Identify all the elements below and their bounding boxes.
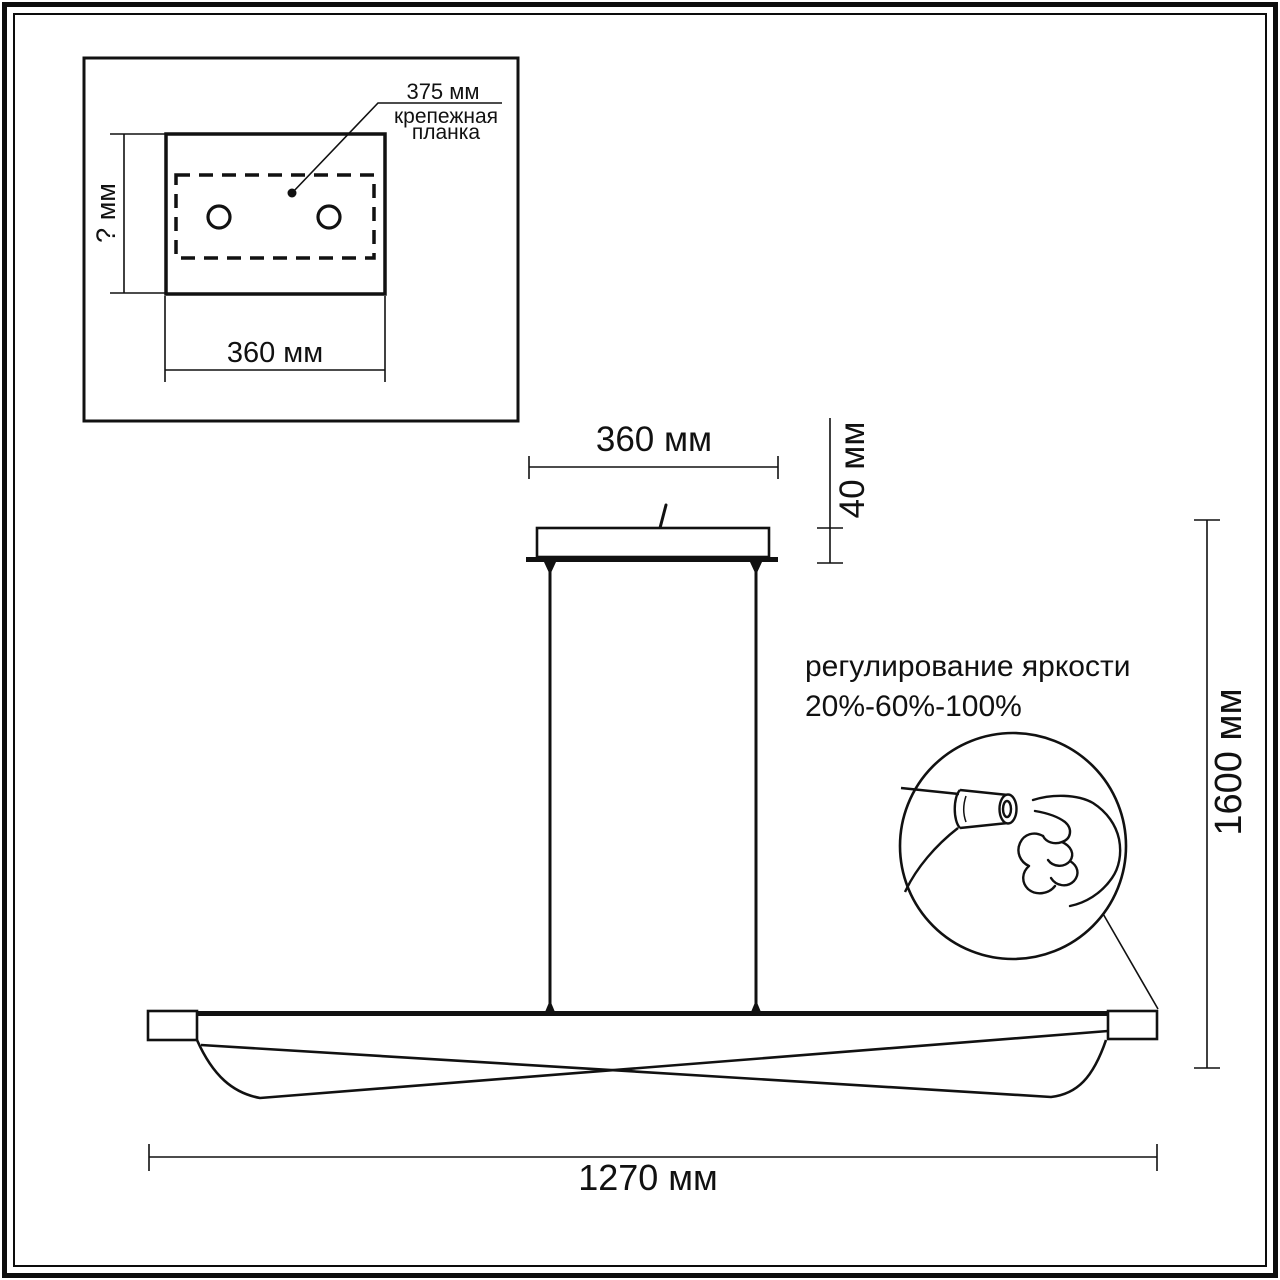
brightness-levels: 20%-60%-100% xyxy=(805,690,1022,723)
pendant-dimension-drawing xyxy=(0,0,1280,1280)
diffuser-back-edge xyxy=(201,1040,1106,1097)
canopy-assembly xyxy=(526,505,778,1013)
bracket-length-label: 375 мм xyxy=(406,80,479,104)
lamp-body xyxy=(148,1011,1157,1098)
brightness-detail xyxy=(900,733,1158,1009)
rod-flare xyxy=(751,1000,761,1012)
canopy-top-view xyxy=(166,134,385,294)
canopy-height-label: 40 мм xyxy=(834,422,873,519)
rod-flare xyxy=(544,562,556,575)
detail-circle xyxy=(900,733,1126,959)
brightness-title: регулирование яркости xyxy=(805,650,1131,683)
drawing-sheet: 375 мм крепежная планка ? мм 360 мм 360 … xyxy=(0,0,1280,1280)
inset-width-label: 360 мм xyxy=(227,338,323,370)
detail-leader-line xyxy=(1102,912,1158,1009)
lamp-bar xyxy=(148,1011,1157,1016)
inset-height-label: ? мм xyxy=(92,183,122,243)
diffuser-front-edge xyxy=(197,1031,1108,1098)
mounting-hole-left xyxy=(208,206,230,228)
mounting-bracket-dashed xyxy=(176,175,374,258)
mounting-hole-right xyxy=(318,206,340,228)
end-cap-left xyxy=(148,1011,197,1040)
rod-flare xyxy=(545,1000,555,1012)
canopy-width-label: 360 мм xyxy=(596,421,712,460)
end-cap-right xyxy=(1108,1011,1157,1039)
canopy-plate xyxy=(526,557,778,562)
suspension-height-label: 1600 мм xyxy=(1209,688,1251,835)
canopy-box xyxy=(537,528,769,557)
fixture-width-label: 1270 мм xyxy=(578,1158,718,1198)
bracket-name-label: крепежная планка xyxy=(394,109,498,141)
rod-flare xyxy=(750,562,762,575)
suspension-pin xyxy=(660,505,666,528)
